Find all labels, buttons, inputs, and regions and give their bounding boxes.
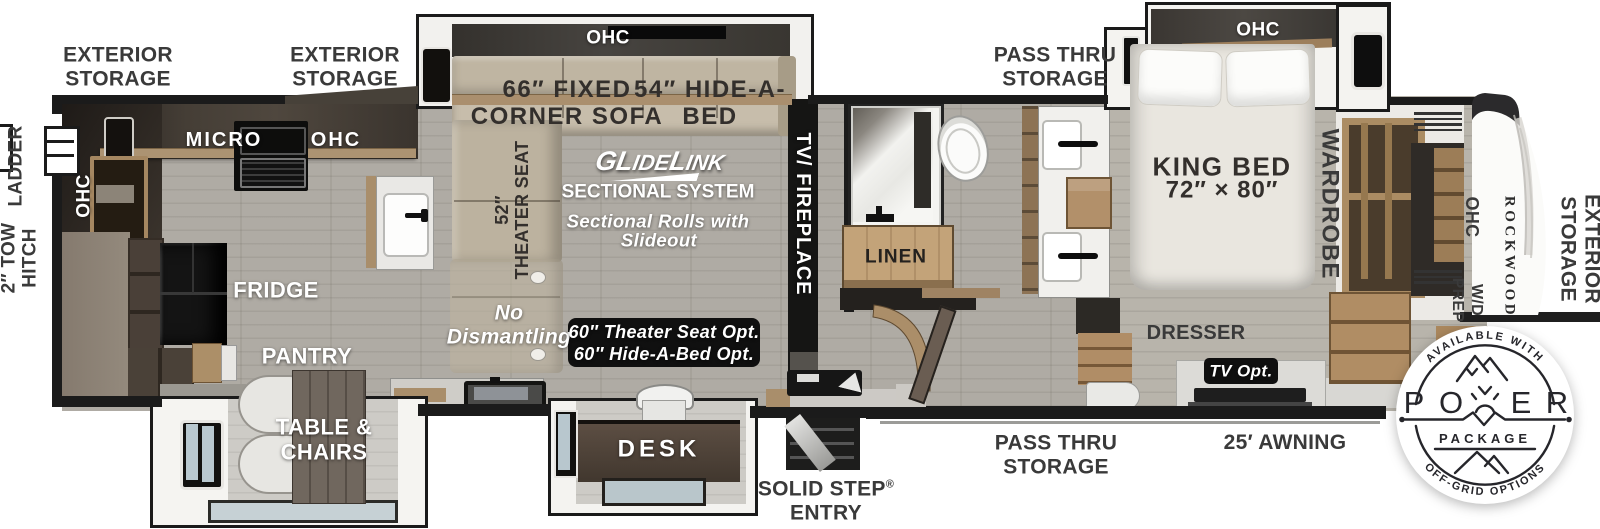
svg-text:P: P [1404, 385, 1425, 420]
svg-text:R: R [1546, 385, 1568, 420]
svg-text:E: E [1511, 385, 1532, 420]
svg-text:O: O [1439, 385, 1463, 420]
svg-text:PACKAGE: PACKAGE [1439, 431, 1531, 446]
